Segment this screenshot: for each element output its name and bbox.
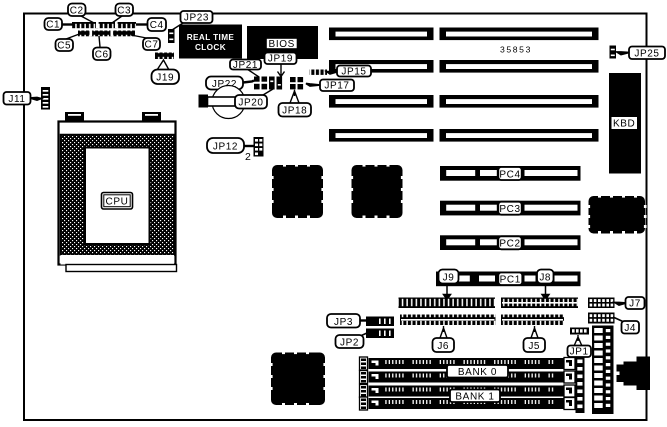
svg-text:J4: J4 bbox=[624, 323, 636, 334]
svg-text:C4: C4 bbox=[150, 20, 164, 31]
svg-text:BIOS: BIOS bbox=[269, 39, 295, 50]
svg-text:CLOCK: CLOCK bbox=[195, 43, 226, 52]
svg-text:J5: J5 bbox=[528, 341, 540, 352]
svg-text:JP12: JP12 bbox=[213, 142, 238, 153]
svg-text:KBD: KBD bbox=[613, 119, 635, 130]
svg-text:JP25: JP25 bbox=[634, 48, 659, 59]
svg-text:J9: J9 bbox=[443, 273, 455, 284]
svg-text:J19: J19 bbox=[156, 73, 174, 84]
svg-text:C6: C6 bbox=[95, 49, 109, 60]
svg-text:JP19: JP19 bbox=[268, 54, 293, 65]
svg-text:JP23: JP23 bbox=[184, 13, 209, 24]
svg-text:35853: 35853 bbox=[500, 45, 532, 55]
svg-text:JP15: JP15 bbox=[341, 66, 366, 77]
svg-text:JP21: JP21 bbox=[233, 60, 258, 71]
svg-text:JP18: JP18 bbox=[282, 106, 307, 117]
svg-text:C5: C5 bbox=[57, 41, 71, 52]
svg-text:JP17: JP17 bbox=[324, 81, 349, 92]
svg-text:PC4: PC4 bbox=[499, 169, 520, 180]
svg-text:JP20: JP20 bbox=[238, 98, 263, 109]
svg-text:PC1: PC1 bbox=[500, 275, 521, 286]
svg-text:J11: J11 bbox=[8, 94, 25, 105]
svg-text:J7: J7 bbox=[629, 299, 641, 310]
svg-text:JP2: JP2 bbox=[340, 337, 359, 348]
svg-text:C7: C7 bbox=[145, 40, 159, 51]
svg-text:PC2: PC2 bbox=[499, 239, 520, 250]
svg-text:BANK 0: BANK 0 bbox=[458, 367, 497, 378]
svg-text:BANK 1: BANK 1 bbox=[455, 392, 494, 403]
svg-text:JP1: JP1 bbox=[570, 347, 589, 358]
svg-text:JP3: JP3 bbox=[334, 317, 353, 328]
svg-text:J8: J8 bbox=[539, 273, 551, 284]
svg-text:C1: C1 bbox=[46, 20, 60, 31]
svg-text:REAL TIME: REAL TIME bbox=[187, 33, 235, 42]
svg-text:PC3: PC3 bbox=[499, 204, 520, 215]
svg-text:C2: C2 bbox=[70, 5, 84, 16]
svg-text:2: 2 bbox=[245, 151, 251, 163]
svg-text:J6: J6 bbox=[437, 341, 449, 352]
svg-text:CPU: CPU bbox=[106, 197, 129, 208]
svg-text:C3: C3 bbox=[117, 5, 131, 16]
